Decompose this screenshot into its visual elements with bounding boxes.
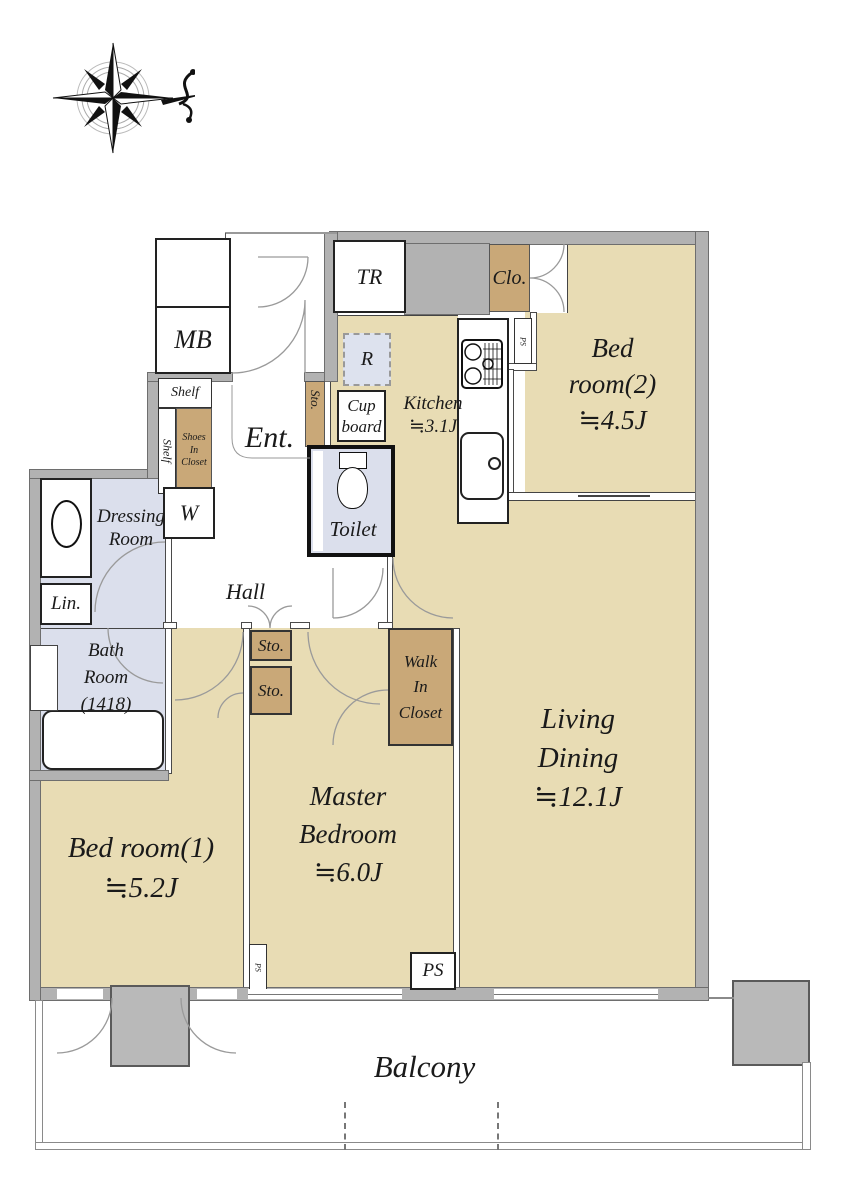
bedroom1-label: Bed room(1) ≒5.2J (35, 828, 247, 908)
bath-room-label: Bath Room (1418) (50, 637, 162, 718)
entrance-label: Ent. (222, 418, 317, 458)
living-dining-label: Living Dining ≒12.1J (468, 700, 688, 817)
master-bedroom-label: Master Bedroom ≒6.0J (248, 777, 448, 891)
dressing-room-label: Dressing Room (75, 505, 187, 551)
kitchen-label: Kitchen ≒3.1J (388, 392, 478, 438)
floor-plan: Clo. Sto. Shoes In Closet Sto. Sto. Walk… (0, 0, 844, 1200)
toilet-label: Toilet (318, 516, 388, 544)
hall-label: Hall (198, 577, 293, 606)
door-arcs (0, 0, 844, 1200)
bedroom2-label: Bed room(2) ≒4.5J (525, 330, 700, 438)
balcony-label: Balcony (327, 1047, 522, 1088)
